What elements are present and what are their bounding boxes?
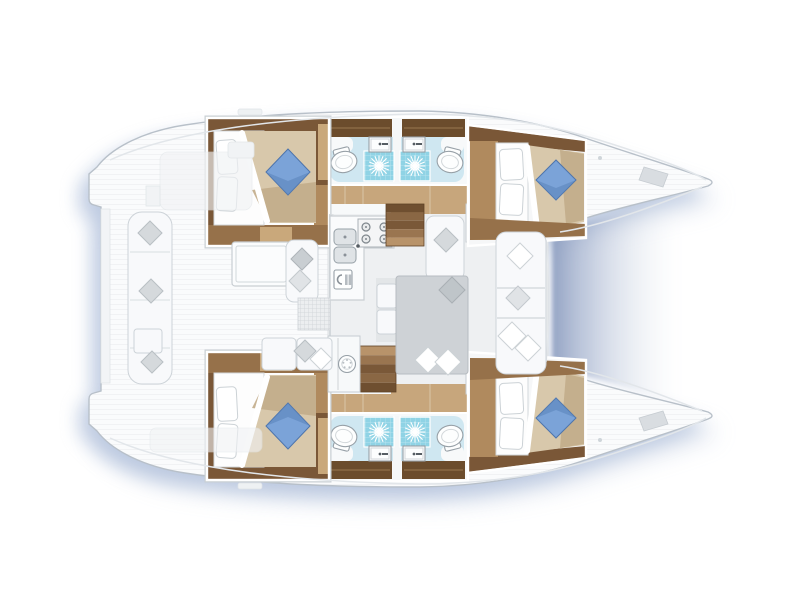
coachroof-panel	[160, 152, 252, 210]
washing-machine	[339, 356, 356, 373]
cockpit-bench	[128, 212, 172, 384]
helm-console	[228, 142, 254, 158]
saloon	[328, 204, 550, 392]
utility-room	[328, 336, 360, 392]
fridge-icon	[334, 270, 352, 289]
twin-bathrooms	[326, 117, 468, 185]
bench-cushion	[377, 284, 397, 308]
seat-pad	[134, 329, 162, 353]
side-locker	[146, 186, 160, 206]
shower	[364, 151, 394, 181]
shower	[400, 151, 430, 181]
cabin-bow	[468, 125, 586, 246]
cockpit-table	[232, 242, 290, 286]
front-bench	[496, 232, 546, 374]
transom-steps	[150, 428, 262, 452]
stairs-to-bottom-hull	[358, 346, 396, 392]
transom-platform	[101, 209, 110, 383]
aft-bench	[262, 338, 332, 370]
deck-hatch	[238, 483, 262, 489]
chaise-lounge	[286, 240, 318, 302]
deck-cleat	[598, 438, 602, 442]
floor-plan-page	[0, 0, 800, 600]
deck-mat	[298, 298, 330, 330]
deck-cleat	[598, 156, 602, 160]
forward-lounge-seat	[426, 216, 464, 280]
stairs-to-top-hull	[386, 204, 424, 246]
corridor-wall	[327, 204, 391, 214]
cabin-floor	[314, 185, 330, 227]
bench-cushion	[377, 310, 397, 334]
deck-hatch	[238, 109, 262, 115]
double-bed	[496, 143, 584, 233]
floor-plan-canvas	[0, 0, 800, 600]
